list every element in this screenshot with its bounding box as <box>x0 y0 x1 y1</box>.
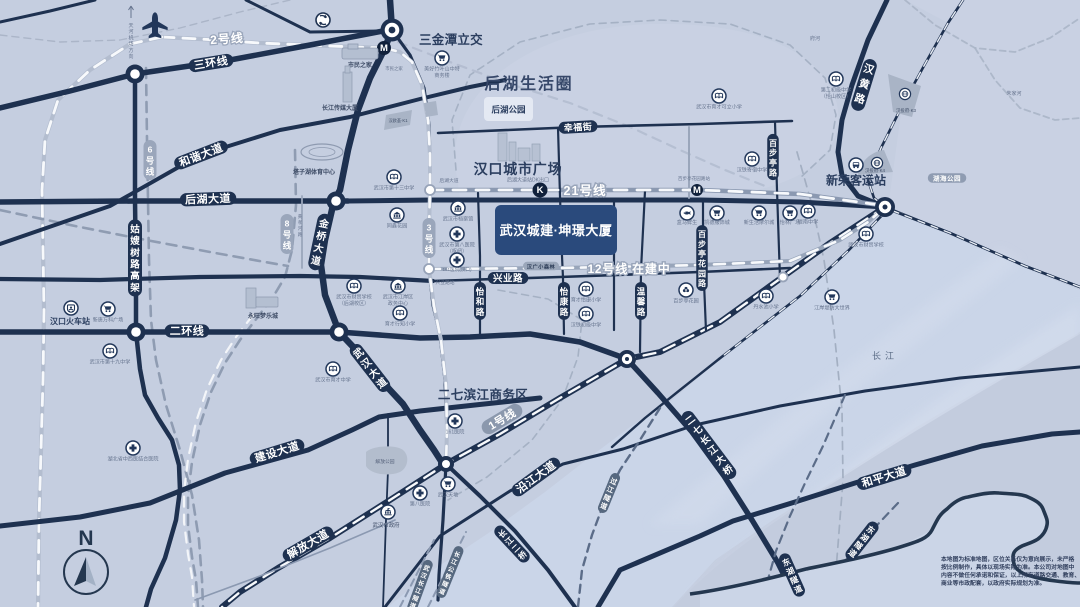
svg-text:花: 花 <box>698 259 706 269</box>
svg-text:盒马鲜生: 盒马鲜生 <box>677 219 697 226</box>
svg-text:武汉市政府: 武汉市政府 <box>373 521 401 529</box>
svg-text:161医院(汉口): 161医院(汉口) <box>442 266 472 273</box>
svg-text:方: 方 <box>128 47 133 54</box>
svg-text:亭: 亭 <box>698 249 706 259</box>
svg-text:武汉城建·坤璟大厦: 武汉城建·坤璟大厦 <box>500 223 613 238</box>
svg-text:育才怡康小学: 育才怡康小学 <box>571 297 602 304</box>
svg-text:兴业路站: 兴业路站 <box>435 279 454 286</box>
svg-text:百: 百 <box>698 230 706 239</box>
svg-text:怡: 怡 <box>476 286 485 296</box>
svg-text:场: 场 <box>128 41 133 48</box>
svg-text:路: 路 <box>560 307 569 317</box>
svg-text:新生活摩尔城: 新生活摩尔城 <box>744 219 775 226</box>
svg-text:武汉市第八医院: 武汉市第八医院 <box>439 242 475 249</box>
svg-text:2号线: 2号线 <box>210 30 245 47</box>
svg-text:和: 和 <box>476 297 485 307</box>
svg-text:线: 线 <box>283 240 292 250</box>
svg-text:汉广小森林: 汉广小森林 <box>527 262 556 270</box>
svg-text:兴业路: 兴业路 <box>493 272 523 284</box>
svg-text:百步亭花园路站: 百步亭花园路站 <box>678 175 711 182</box>
svg-text:路: 路 <box>130 259 140 271</box>
svg-text:汉口城市广场: 汉口城市广场 <box>474 161 563 177</box>
svg-text:（后湖校区）: （后湖校区） <box>339 300 370 307</box>
svg-text:武汉市第十三中学: 武汉市第十三中学 <box>374 185 415 192</box>
svg-text:M: M <box>380 43 388 54</box>
svg-text:园: 园 <box>698 269 706 278</box>
svg-text:丹水池小学: 丹水池小学 <box>753 304 778 311</box>
svg-text:路: 路 <box>769 167 778 177</box>
svg-text:美好竹叶山中特: 美好竹叶山中特 <box>424 66 460 73</box>
svg-text:路: 路 <box>298 231 303 238</box>
svg-text:幸福街: 幸福街 <box>563 121 592 133</box>
svg-text:黄: 黄 <box>298 213 303 220</box>
svg-text:塔子湖体育中心: 塔子湖体育中心 <box>293 168 335 176</box>
svg-text:高: 高 <box>130 270 140 282</box>
svg-text:后湖公园: 后湖公园 <box>491 105 525 115</box>
svg-text:向: 向 <box>128 53 133 60</box>
svg-text:市民之家: 市民之家 <box>348 61 372 69</box>
svg-text:姑: 姑 <box>130 223 140 235</box>
svg-text:朱家河: 朱家河 <box>1006 90 1021 97</box>
svg-text:温: 温 <box>637 286 646 296</box>
svg-text:孝: 孝 <box>298 220 303 225</box>
svg-text:12号线 在建中: 12号线 在建中 <box>587 261 670 276</box>
svg-text:后湖大道: 后湖大道 <box>439 177 458 184</box>
svg-text:路: 路 <box>476 307 485 317</box>
svg-text:河: 河 <box>128 28 133 35</box>
svg-text:武汉市档案馆: 武汉市档案馆 <box>443 216 474 223</box>
svg-text:百: 百 <box>769 139 777 148</box>
svg-text:6: 6 <box>148 144 153 154</box>
svg-text:长江: 长江 <box>872 350 898 361</box>
svg-text:湖海公园: 湖海公园 <box>933 174 961 183</box>
svg-text:康: 康 <box>560 297 569 307</box>
svg-text:号: 号 <box>283 229 292 239</box>
svg-text:长江传媒大厦: 长江传媒大厦 <box>322 104 359 112</box>
svg-text:3: 3 <box>427 222 432 232</box>
svg-text:第二初级中学: 第二初级中学 <box>821 87 852 94</box>
svg-text:M: M <box>693 185 701 196</box>
svg-text:武汉市江岸区: 武汉市江岸区 <box>383 294 414 301</box>
svg-text:湖北省中西医结合医院: 湖北省中西医结合医院 <box>108 456 159 463</box>
svg-text:亭: 亭 <box>769 158 777 168</box>
svg-text:武汉市第十九中学: 武汉市第十九中学 <box>90 359 131 366</box>
svg-text:步: 步 <box>769 148 777 158</box>
svg-text:K: K <box>537 185 544 196</box>
svg-text:市民之家: 市民之家 <box>385 65 403 72</box>
svg-text:府河: 府河 <box>810 35 820 42</box>
svg-text:武汉天地: 武汉天地 <box>438 492 458 499</box>
svg-text:新荣客运站: 新荣客运站 <box>826 173 886 188</box>
svg-text:武汉市财贸学校: 武汉市财贸学校 <box>848 242 884 249</box>
svg-text:内容不做任何承诺和保证，以上所有道路交通、教育、: 内容不做任何承诺和保证，以上所有道路交通、教育、 <box>941 571 1080 579</box>
svg-text:商务楼: 商务楼 <box>434 72 449 79</box>
svg-text:号: 号 <box>146 155 155 165</box>
svg-text:本地图为标准地图，区位关系仅为意向展示，未严格: 本地图为标准地图，区位关系仅为意向展示，未严格 <box>941 555 1075 563</box>
svg-text:按比例制作，具体以现场实际为准。本公司对地图中: 按比例制作，具体以现场实际为准。本公司对地图中 <box>941 563 1075 571</box>
svg-text:线: 线 <box>425 244 434 254</box>
svg-text:树: 树 <box>130 247 140 259</box>
svg-text:永旺梦乐城: 永旺梦乐城 <box>247 312 278 320</box>
svg-text:育才行知小学: 育才行知小学 <box>385 321 416 328</box>
svg-text:新唐万科广场: 新唐万科广场 <box>93 317 124 324</box>
svg-text:路: 路 <box>698 278 707 288</box>
svg-text:汉欧荟·K1: 汉欧荟·K1 <box>388 117 408 124</box>
svg-text:商业等市政配套，以政府实际规划为准。: 商业等市政配套，以政府实际规划为准。 <box>941 579 1045 587</box>
svg-text:百步亭花园: 百步亭花园 <box>673 298 698 305</box>
svg-text:堤南中学: 堤南中学 <box>798 219 818 226</box>
svg-text:怡: 怡 <box>560 286 569 296</box>
svg-text:武汉市育才中学: 武汉市育才中学 <box>315 377 351 384</box>
svg-text:天: 天 <box>128 23 133 29</box>
svg-text:馨: 馨 <box>636 297 646 307</box>
svg-text:161医院: 161医院 <box>446 429 465 436</box>
svg-text:武汉市育才可立小学: 武汉市育才可立小学 <box>696 104 742 111</box>
svg-text:二七滨江商务区: 二七滨江商务区 <box>438 387 528 402</box>
svg-text:架: 架 <box>129 282 140 294</box>
svg-text:机: 机 <box>128 34 133 41</box>
svg-text:路: 路 <box>637 307 646 317</box>
svg-text:线: 线 <box>146 166 155 176</box>
svg-text:汉铁寄宿中学: 汉铁寄宿中学 <box>737 167 768 174</box>
svg-text:武汉市财贸学校: 武汉市财贸学校 <box>336 294 372 301</box>
svg-text:同鑫花园: 同鑫花园 <box>387 223 407 230</box>
svg-text:号: 号 <box>425 233 434 243</box>
svg-text:第八医院: 第八医院 <box>410 501 430 508</box>
svg-text:嫂: 嫂 <box>130 235 140 247</box>
svg-text:凯德服饰城: 凯德服饰城 <box>704 219 729 226</box>
svg-text:汉铁初级中学: 汉铁初级中学 <box>571 322 602 329</box>
svg-text:三金潭立交: 三金潭立交 <box>419 32 483 47</box>
svg-text:21号线: 21号线 <box>564 183 607 198</box>
svg-text:汉口火车站: 汉口火车站 <box>50 316 90 326</box>
svg-text:江岸堤防大世界: 江岸堤防大世界 <box>814 305 850 312</box>
svg-text:N: N <box>78 527 93 550</box>
svg-text:解放公园: 解放公园 <box>375 458 394 465</box>
svg-text:后湖大道站DK出口: 后湖大道站DK出口 <box>507 177 549 184</box>
svg-text:河: 河 <box>298 225 303 231</box>
svg-text:（怡山校区）: （怡山校区） <box>821 93 852 100</box>
svg-text:二环线: 二环线 <box>170 324 205 338</box>
svg-text:8: 8 <box>285 218 290 228</box>
svg-text:步: 步 <box>698 239 706 249</box>
svg-text:后湖生活圈: 后湖生活圈 <box>484 74 573 93</box>
svg-text:汉投府·K3: 汉投府·K3 <box>896 107 917 114</box>
